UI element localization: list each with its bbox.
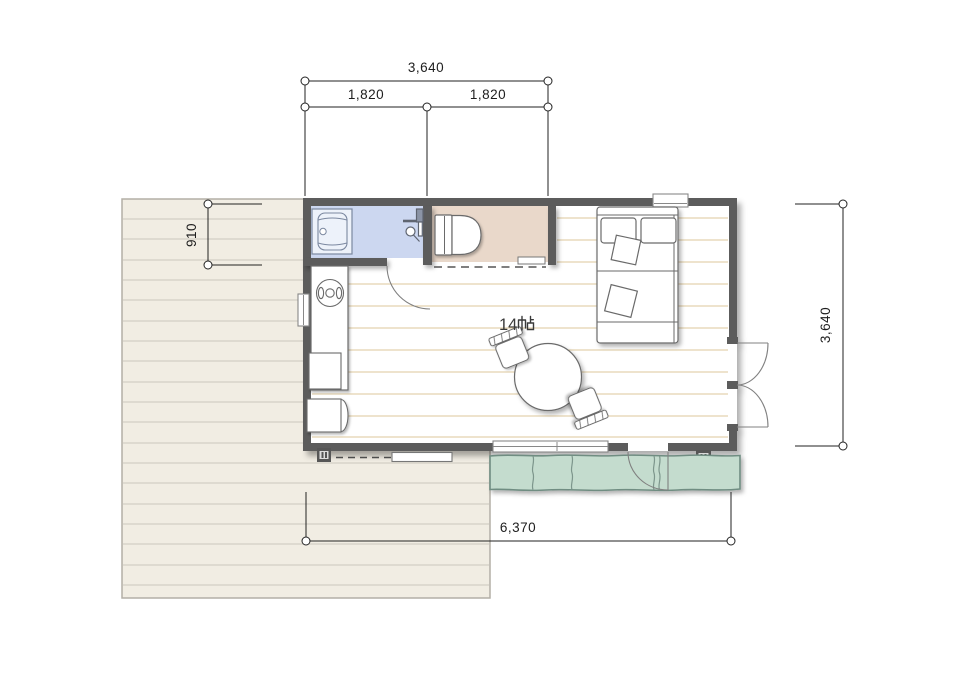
door-jamb-upper xyxy=(727,337,738,344)
dim-right-height: 3,640 xyxy=(818,307,833,343)
room-area-number: 14 xyxy=(499,316,517,334)
door-jamb-middle xyxy=(727,381,738,389)
step-board xyxy=(392,453,452,462)
building: 14 xyxy=(298,194,768,452)
double-door xyxy=(737,343,768,427)
vanity-sink xyxy=(312,209,352,254)
cushion-2 xyxy=(605,285,638,318)
toilet-east-wall xyxy=(548,206,556,265)
dimension-top: 3,640 1,820 1,820 xyxy=(301,60,552,196)
bed xyxy=(597,207,678,343)
door-jamb-lower xyxy=(727,424,738,431)
exterior-wall-bottom-right xyxy=(668,443,737,451)
stool xyxy=(307,399,348,432)
pillow-right xyxy=(641,218,676,243)
bathroom-toilet-divider-wall xyxy=(423,206,432,265)
left-window xyxy=(298,294,309,326)
engawa-surface xyxy=(490,455,740,490)
kitchen-counter xyxy=(309,266,348,390)
exterior-wall-right-upper xyxy=(729,198,737,344)
dim-bottom-total: 6,370 xyxy=(500,520,536,535)
exterior-wall-bottom-left xyxy=(303,443,494,451)
dimension-right: 3,640 xyxy=(795,200,847,450)
double-door-upper-leaf xyxy=(737,343,768,385)
bottom-sliding-window xyxy=(493,441,608,452)
exterior-wall-bottom-mid xyxy=(607,443,628,451)
bathroom-south-wall xyxy=(303,258,387,266)
floor-plan-canvas: 14 xyxy=(0,0,955,685)
sink-drain xyxy=(320,228,326,234)
top-window xyxy=(653,194,688,207)
dim-top-span-left: 1,820 xyxy=(348,87,384,102)
toilet-door-pocket xyxy=(518,257,545,264)
engawa-deck xyxy=(490,455,740,490)
vent-left xyxy=(317,448,331,462)
cushion-1 xyxy=(611,235,641,265)
dim-left-depth: 910 xyxy=(184,223,199,247)
counter-cabinet xyxy=(309,353,341,389)
round-sink xyxy=(317,280,344,307)
toilet xyxy=(435,215,481,255)
double-door-lower-leaf xyxy=(737,385,768,427)
dim-top-span-right: 1,820 xyxy=(470,87,506,102)
dim-top-total: 3,640 xyxy=(408,60,444,75)
floor-plan-drawing: 14 xyxy=(0,0,955,685)
